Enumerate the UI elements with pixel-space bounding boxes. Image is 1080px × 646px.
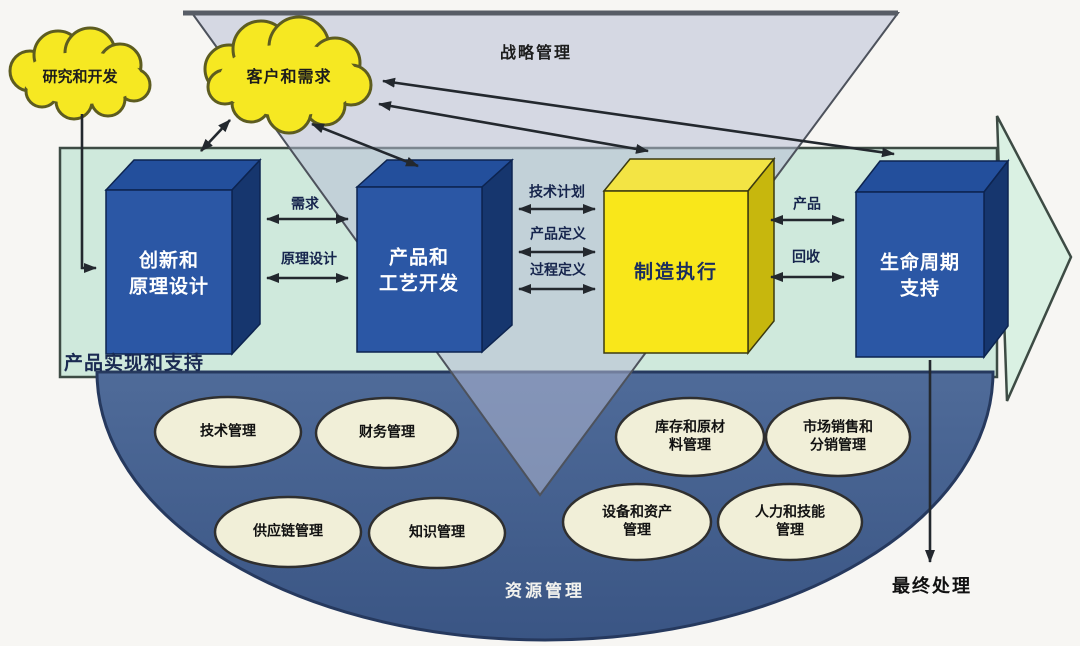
realization-band-label: 产品实现和支持 <box>64 352 204 376</box>
customer-cloud-label: 客户和需求 <box>246 67 331 87</box>
box-process-label: 产品和 工艺开发 <box>379 245 459 296</box>
strategy-label: 战略管理 <box>500 43 572 63</box>
box-lifecycle-label: 生命周期 支持 <box>880 250 960 301</box>
process-definition-label: 过程定义 <box>530 262 586 280</box>
recycle-label: 回收 <box>792 249 820 267</box>
tech-plan-label: 技术计划 <box>529 184 585 202</box>
customer-innovation-arrow <box>201 120 230 151</box>
product-definition-label: 产品定义 <box>530 226 586 244</box>
box-manufacturing-label: 制造执行 <box>634 260 718 286</box>
pool-sales-distribution-label: 市场销售和 分销管理 <box>803 420 873 455</box>
pool-knowledge-label: 知识管理 <box>409 524 465 542</box>
plm-architecture-diagram: 战略管理 研究和开发 客户和需求 产品实现和支持 创新和 原理设计 产品和 工艺… <box>0 0 1080 646</box>
pool-supply-chain-label: 供应链管理 <box>253 523 323 541</box>
pool-finance-label: 财务管理 <box>359 424 415 442</box>
final-disposal-label: 最终处理 <box>892 576 972 599</box>
demand-label: 需求 <box>291 196 319 214</box>
resource-dome-label: 资源管理 <box>505 581 585 602</box>
diagram-shapes <box>0 0 1080 646</box>
pool-equipment-assets-label: 设备和资产 管理 <box>602 505 672 540</box>
box-innovation-label: 创新和 原理设计 <box>129 248 209 299</box>
box-manufacturing-execution <box>604 159 774 353</box>
principle-design-label: 原理设计 <box>281 251 337 269</box>
pool-inventory-label: 库存和原材 料管理 <box>655 420 725 455</box>
product-label: 产品 <box>793 196 821 214</box>
pool-hr-skills-label: 人力和技能 管理 <box>755 505 825 540</box>
rd-cloud-label: 研究和开发 <box>42 68 117 87</box>
pool-technology-label: 技术管理 <box>200 423 256 441</box>
